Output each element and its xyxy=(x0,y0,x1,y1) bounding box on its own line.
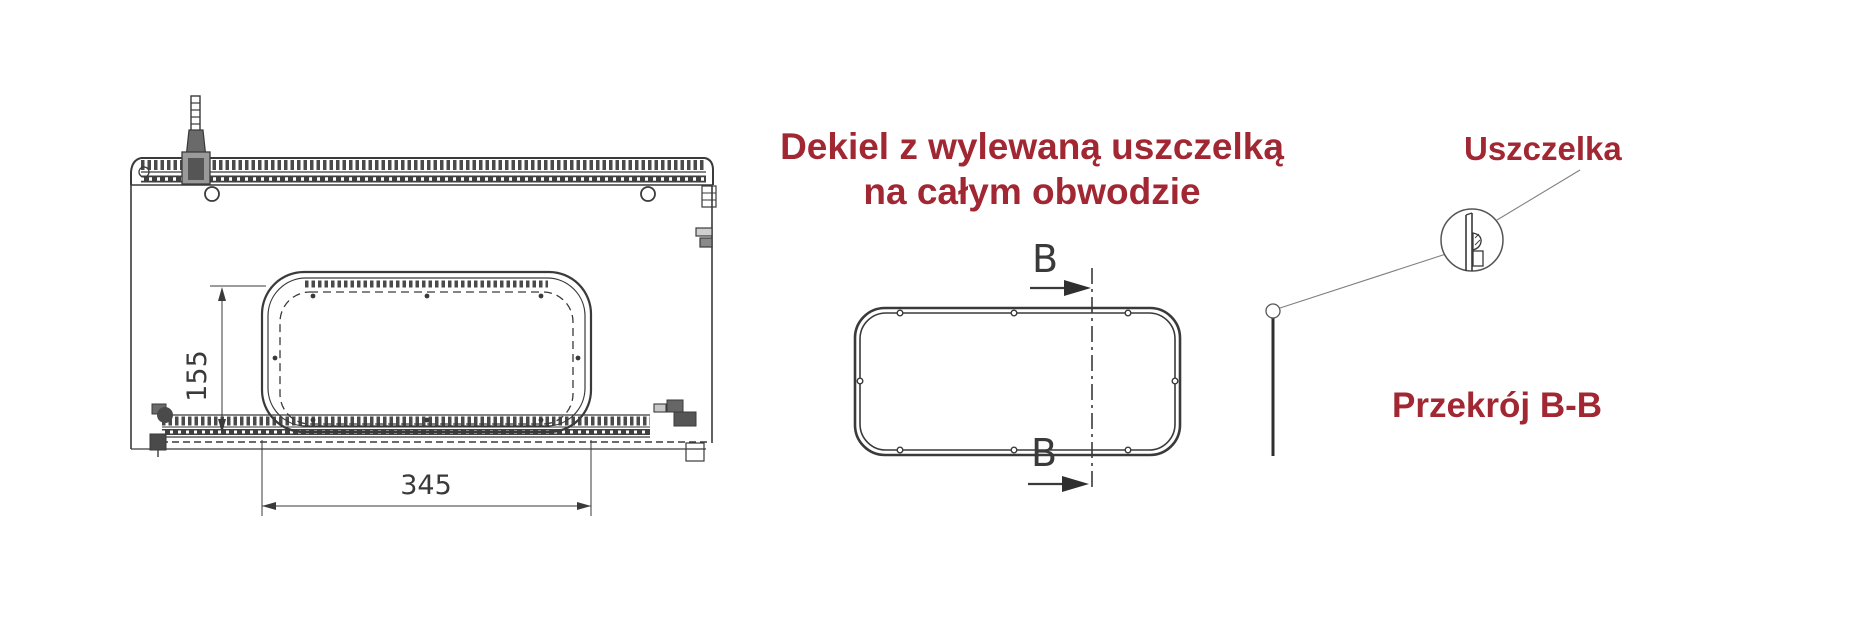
grounding-bolt xyxy=(182,96,210,184)
bottom-gasket-band xyxy=(150,415,710,442)
door-latch xyxy=(696,228,712,247)
main-caption-line1: Dekiel z wylewaną uszczelką xyxy=(752,124,1312,169)
section-mark-b-bottom: B xyxy=(1031,431,1057,475)
drawing-canvas: 155 345 B xyxy=(0,0,1850,627)
dimension-155-label: 155 xyxy=(182,350,213,402)
detail-leader-line-lower xyxy=(1280,254,1446,308)
dimension-345: 345 xyxy=(262,440,591,516)
main-caption-line2: na całym obwodzie xyxy=(752,169,1312,214)
gasket-label: Uszczelka xyxy=(1464,130,1622,168)
cover-outline-inner xyxy=(860,313,1175,450)
detail-leader-line-upper xyxy=(1497,170,1580,220)
profile-top-eyelet xyxy=(1266,304,1280,318)
section-arrow-top xyxy=(1030,280,1091,296)
side-view-drawing: 155 345 xyxy=(131,96,716,516)
top-hinge-rail xyxy=(131,158,713,185)
door-cutout xyxy=(262,272,591,432)
cutout-screw-dots xyxy=(273,294,581,423)
section-arrow-bottom xyxy=(1028,476,1089,492)
cover-weld-nubs xyxy=(857,310,1178,453)
flange-hole-left xyxy=(205,187,219,201)
technical-drawing-page: 155 345 B xyxy=(0,0,1850,627)
dimension-345-label: 345 xyxy=(400,470,452,501)
section-mark-b-top: B xyxy=(1032,237,1058,281)
main-caption: Dekiel z wylewaną uszczelką na całym obw… xyxy=(752,124,1312,214)
flange-hole-right xyxy=(641,187,655,201)
bottom-right-hinge xyxy=(654,400,704,461)
cover-top-view-drawing: B B xyxy=(855,237,1180,492)
door-body-outline xyxy=(131,185,716,449)
cover-outline-outer xyxy=(855,308,1180,455)
dimension-155: 155 xyxy=(182,286,266,433)
section-label: Przekrój B-B xyxy=(1392,386,1602,426)
